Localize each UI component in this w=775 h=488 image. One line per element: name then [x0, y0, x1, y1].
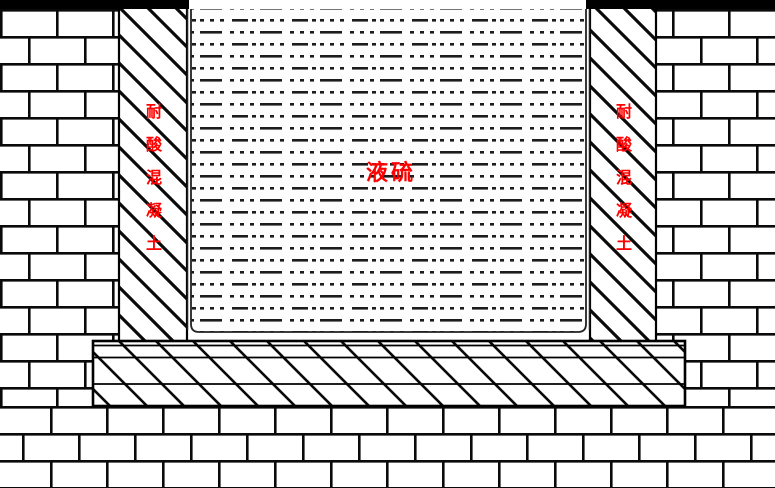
top-cap-right [586, 0, 775, 9]
base-slab [93, 341, 685, 406]
right-outer-brick-wall-lower [685, 343, 775, 406]
top-cap-left [0, 0, 189, 9]
foundation-brickwork [0, 406, 775, 488]
left-outer-brick-wall [0, 9, 119, 343]
liquid-label: 液硫 [366, 155, 416, 187]
liquid-sulfur-pit-diagram: 耐酸混凝土 液硫 耐酸混凝土 [0, 0, 775, 488]
left-wall-label: 耐酸混凝土 [144, 103, 160, 268]
left-outer-brick-wall-lower [0, 343, 93, 406]
right-outer-brick-wall [656, 9, 775, 343]
diagram-canvas [0, 0, 775, 488]
right-wall-label: 耐酸混凝土 [614, 103, 630, 268]
